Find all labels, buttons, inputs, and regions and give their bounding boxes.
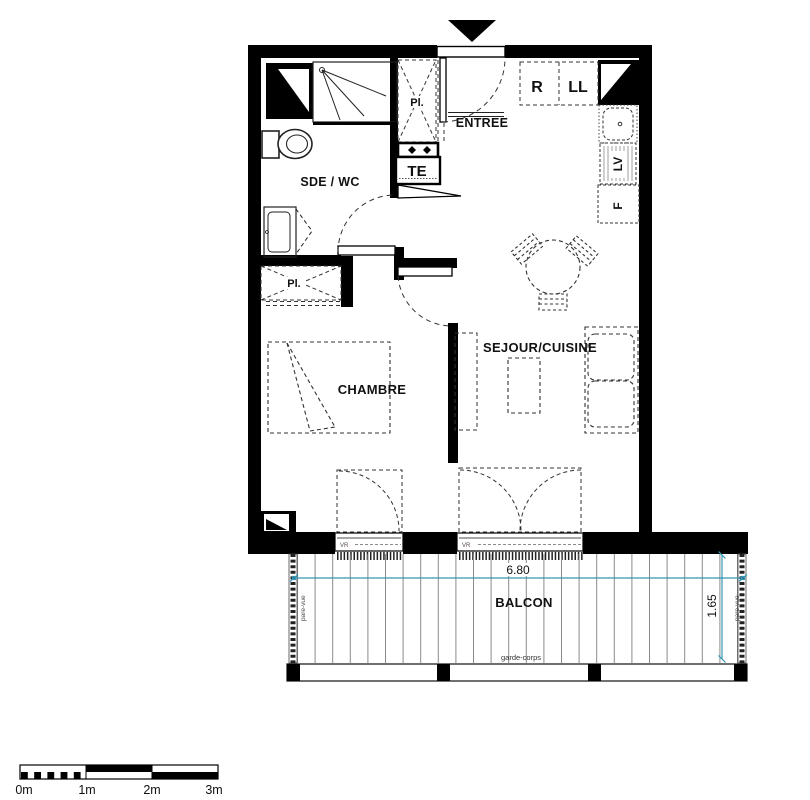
room-label-entree: ENTREE — [456, 116, 509, 130]
te-cupboard — [396, 143, 461, 198]
room-label-sejour: SEJOUR/CUISINE — [483, 340, 597, 355]
sde-door — [338, 195, 395, 255]
entrance-arrow-icon — [448, 20, 496, 42]
label-pl-hall: Pl. — [410, 97, 423, 109]
toilet — [262, 130, 312, 159]
balcony-width-label: 6.80 — [506, 563, 530, 577]
scale-label-0m: 0m — [15, 783, 32, 797]
garde-corps-label: garde-corps — [501, 653, 541, 662]
scale-label-3m: 3m — [205, 783, 222, 797]
label-f: F — [611, 202, 625, 209]
pare-vue-screen-left — [289, 554, 297, 663]
scale-label-1m: 1m — [78, 783, 95, 797]
chambre-door — [398, 267, 452, 326]
duct-sde — [266, 63, 313, 119]
scale-bar: 0m 1m 2m 3m — [15, 765, 222, 797]
label-vr-sejour: VR — [462, 543, 471, 549]
room-label-balcon: BALCON — [495, 595, 552, 610]
tv-cabinet — [455, 333, 477, 430]
coffee-table — [508, 358, 540, 413]
room-label-sde-wc: SDE / WC — [300, 175, 359, 189]
scale-label-2m: 2m — [143, 783, 160, 797]
garde-corps-railing — [287, 664, 747, 681]
label-lv: LV — [611, 157, 625, 171]
balcony-depth-label: 1.65 — [705, 594, 719, 618]
room-label-chambre: CHAMBRE — [338, 382, 407, 397]
label-vr-chambre: VR — [340, 543, 349, 549]
floor-plan: 6.80 1.65 pare-vue pare-vue garde-corps … — [0, 0, 810, 800]
te-door-leaf — [398, 185, 461, 198]
duct-kitchen — [598, 60, 639, 105]
pare-vue-right-label: pare-vue — [734, 595, 741, 621]
washbasin — [264, 207, 312, 257]
window-sejour — [457, 468, 583, 556]
balcony: 6.80 1.65 pare-vue pare-vue garde-corps — [287, 552, 747, 682]
pare-vue-left-label: pare-vue — [300, 595, 307, 621]
label-pl-chambre: Pl. — [287, 278, 300, 290]
small-labels: Pl. Pl. TE R LL LV F VR VR — [283, 79, 626, 549]
label-ll: LL — [568, 79, 588, 96]
shower — [313, 62, 397, 124]
label-te: TE — [407, 163, 426, 180]
label-r: R — [531, 79, 543, 96]
chair — [566, 236, 598, 266]
chair — [539, 294, 567, 310]
floor-plan-canvas: 6.80 1.65 pare-vue pare-vue garde-corps … — [0, 0, 810, 800]
duct-bottom-left — [263, 513, 290, 532]
entry-door — [440, 58, 505, 122]
dining-table — [511, 234, 598, 310]
entry-door-sill — [437, 47, 505, 58]
